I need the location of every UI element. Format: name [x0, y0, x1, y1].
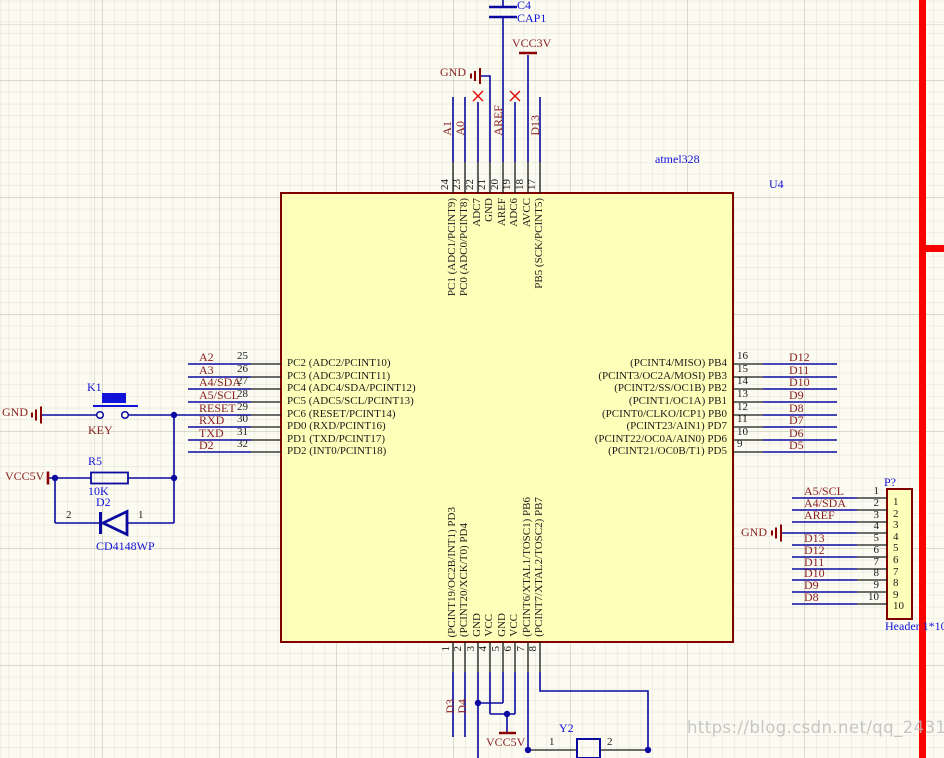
pin-number: 5: [490, 646, 502, 652]
pin-name: (PCINT3/OC2A/MOSI) PB3: [598, 371, 727, 383]
pin-number: 31: [224, 427, 248, 439]
net-label[interactable]: D7: [789, 414, 804, 427]
pin-number: 1: [440, 646, 452, 652]
pin-number: 13: [737, 389, 748, 401]
pin-number: 19: [501, 179, 513, 190]
pin-number: 14: [737, 376, 748, 388]
pin-number: 10: [737, 427, 748, 439]
pin-number: 23: [451, 179, 463, 190]
net-label[interactable]: AREF: [804, 509, 835, 522]
crystal-symbol[interactable]: [577, 739, 600, 758]
diode-comment[interactable]: CD4148WP: [96, 540, 155, 553]
net-label[interactable]: D4: [456, 699, 468, 714]
pin-name: PC6 (RESET/PCINT14): [287, 409, 395, 421]
crystal-designator[interactable]: Y2: [559, 722, 574, 735]
connector-inner-number: 5: [893, 543, 899, 555]
pin-name: GND: [496, 613, 508, 637]
pin-name: (PCINT23/AIN1) PD7: [626, 421, 727, 433]
pin-number: 21: [476, 179, 488, 190]
schematic-canvas: C4 CAP1 VCC3V GND atmel328 U4 A1 A0 AREF…: [0, 0, 944, 758]
pin-name: PC2 (ADC2/PCINT10): [287, 358, 391, 370]
pin-number: 4: [477, 646, 489, 652]
key-comment[interactable]: KEY: [88, 424, 113, 437]
pin-name: (PCINT20/XCK/T0) PD4: [458, 523, 470, 637]
pin-name: AREF: [496, 198, 508, 226]
pin-name: PC0 (ADC0/PCINT8): [458, 198, 470, 296]
pin-number: 2: [855, 498, 879, 510]
pin-number: 30: [224, 414, 248, 426]
pin-number: 17: [526, 179, 538, 190]
connector-inner-number: 3: [893, 520, 899, 532]
ic-comment[interactable]: atmel328: [655, 153, 700, 166]
pin-name: AVCC: [521, 198, 533, 227]
pin-name: (PCINT7/XTAL2/TOSC2) PB7: [533, 497, 545, 637]
connector-inner-number: 8: [893, 578, 899, 590]
pin-name: GND: [483, 198, 495, 222]
net-label[interactable]: D12: [789, 351, 810, 364]
pin-number: 28: [224, 389, 248, 401]
pin-number: 20: [489, 179, 501, 190]
resistor-symbol[interactable]: [91, 473, 128, 484]
connector-inner-number: 10: [893, 601, 904, 613]
net-label[interactable]: D8: [804, 591, 819, 604]
pin-number: 29: [224, 402, 248, 414]
pin-name: VCC: [483, 614, 495, 637]
pin-number: 6: [502, 646, 514, 652]
pin-name: PC3 (ADC3/PCINT11): [287, 371, 390, 383]
connector-comment[interactable]: Header 1*10: [885, 620, 944, 633]
cap-comment[interactable]: CAP1: [517, 12, 546, 25]
net-label[interactable]: D5: [789, 439, 804, 452]
diode-pin1-number: 1: [138, 510, 144, 522]
crystal-pin2-number: 2: [607, 737, 613, 749]
pin-name: PD0 (RXD/PCINT16): [287, 421, 386, 433]
gnd-label-key[interactable]: GND: [2, 406, 28, 419]
pin-name: (PCINT6/XTAL1/TOSC1) PB6: [521, 497, 533, 637]
net-label[interactable]: AREF: [492, 105, 504, 136]
connector-inner-number: 1: [893, 497, 899, 509]
pin-number: 18: [514, 179, 526, 190]
pin-name: GND: [471, 613, 483, 637]
pin-number: 1: [855, 486, 879, 498]
pin-number: 7: [515, 646, 527, 652]
gnd-symbol-key[interactable]: [32, 407, 41, 424]
pin-name: (PCINT19/OC2B/INT1) PD3: [446, 507, 458, 637]
pin-name: (PCINT21/OC0B/T1) PD5: [608, 446, 727, 458]
pin-number: 12: [737, 402, 748, 414]
net-label[interactable]: D10: [789, 376, 810, 389]
pin-name: ADC7: [471, 198, 483, 227]
pin-number: 16: [737, 351, 748, 363]
net-label[interactable]: D13: [529, 115, 541, 136]
pin-name: PC1 (ADC1/PCINT9): [446, 198, 458, 296]
pin-name: PD2 (INT0/PCINT18): [287, 446, 386, 458]
pin-name: PC4 (ADC4/SDA/PCINT12): [287, 383, 416, 395]
pin-name: (PCINT0/CLKO/ICP1) PB0: [602, 409, 727, 421]
pin-number: 24: [439, 179, 451, 190]
pin-number: 3: [465, 646, 477, 652]
cap-designator[interactable]: C4: [517, 0, 531, 12]
gnd-symbol-top[interactable]: [471, 68, 480, 84]
crystal-pin1-number: 1: [549, 737, 555, 749]
pin-number: 25: [224, 351, 248, 363]
vcc5v-label-left[interactable]: VCC5V: [5, 470, 44, 483]
pin-name: (PCINT22/OC0A/AIN0) PD6: [595, 434, 727, 446]
ic-designator[interactable]: U4: [769, 178, 784, 191]
net-label[interactable]: A2: [199, 351, 214, 364]
pin-name: PB5 (SCK/PCINT5): [533, 198, 545, 289]
capacitor-symbol[interactable]: [489, 7, 517, 17]
vcc5v-label-bottom[interactable]: VCC5V: [486, 736, 525, 749]
pin-number: 10: [855, 592, 879, 604]
diode-symbol[interactable]: [101, 512, 128, 535]
pin-number: 8: [855, 568, 879, 580]
pin-number: 9: [737, 439, 743, 451]
pin-name: (PCINT2/SS/OC1B) PB2: [614, 383, 727, 395]
pin-number: 2: [452, 646, 464, 652]
pin-number: 22: [464, 179, 476, 190]
connector-designator[interactable]: P?: [884, 476, 896, 489]
connector-inner-number: 6: [893, 555, 899, 567]
pin-number: 6: [855, 545, 879, 557]
pin-name: ADC6: [508, 198, 520, 227]
pin-number: 5: [855, 533, 879, 545]
diode-pin2-number: 2: [66, 510, 72, 522]
resistor-designator[interactable]: R5: [88, 455, 102, 468]
pin-name: PD1 (TXD/PCINT17): [287, 434, 385, 446]
vcc3v-label[interactable]: VCC3V: [512, 37, 551, 50]
pin-number: 26: [224, 364, 248, 376]
gnd-label-connector[interactable]: GND: [741, 526, 767, 539]
pin-name: PC5 (ADC5/SCL/PCINT13): [287, 396, 414, 408]
gnd-symbol-connector[interactable]: [772, 525, 781, 542]
net-label[interactable]: D2: [199, 439, 214, 452]
pin-number: 32: [224, 439, 248, 451]
key-designator[interactable]: K1: [87, 381, 102, 394]
pin-number: 4: [855, 521, 879, 533]
gnd-label-top[interactable]: GND: [440, 66, 466, 79]
no-connect-marks[interactable]: [473, 91, 520, 101]
pin-number: 15: [737, 364, 748, 376]
pin-number: 11: [737, 414, 748, 426]
net-label[interactable]: D9: [789, 389, 804, 402]
diode-designator[interactable]: D2: [96, 496, 111, 509]
net-label[interactable]: A1: [441, 121, 453, 136]
pin-name: (PCINT1/OC1A) PB1: [629, 396, 727, 408]
pin-number: 27: [224, 376, 248, 388]
net-label[interactable]: RXD: [199, 414, 224, 427]
pin-name: (PCINT4/MISO) PB4: [630, 358, 727, 370]
watermark: https://blog.csdn.net/qq_24312945: [687, 719, 944, 736]
pin-name: VCC: [508, 614, 520, 637]
pin-number: 8: [527, 646, 539, 652]
net-label[interactable]: A0: [454, 121, 466, 136]
region-line[interactable]: [919, 0, 944, 758]
pin-number: 9: [855, 580, 879, 592]
